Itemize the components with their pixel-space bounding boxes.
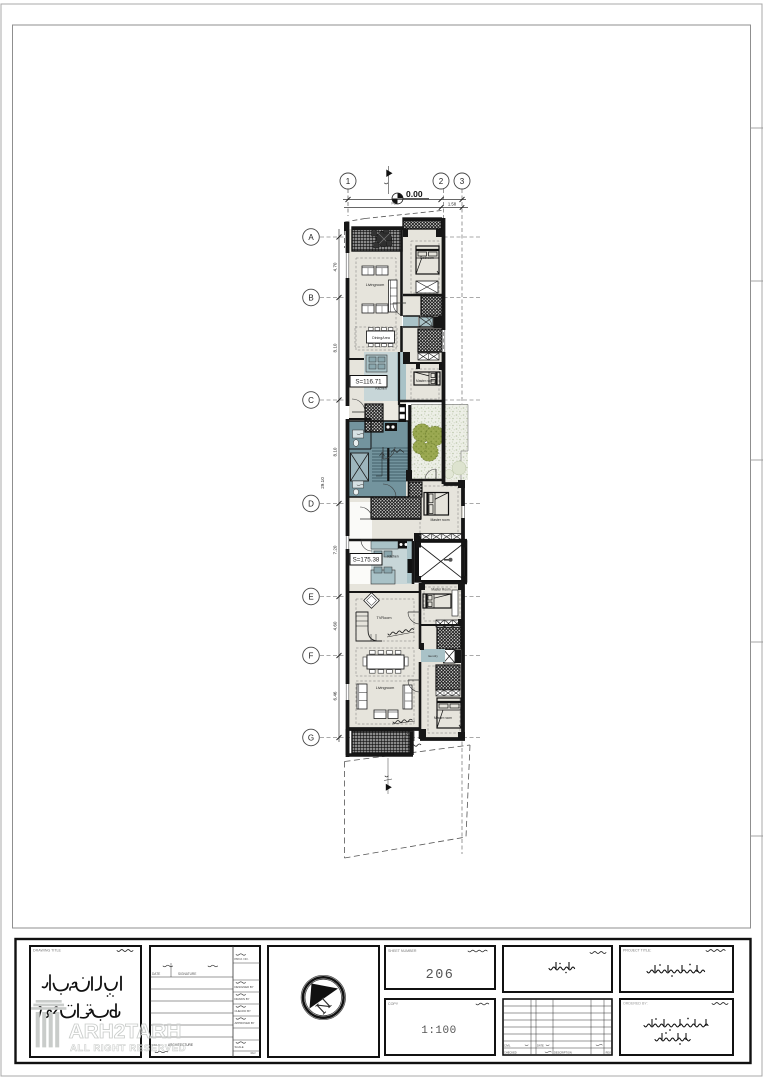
svg-text:206: 206 xyxy=(426,968,455,983)
svg-text:E: E xyxy=(308,592,313,601)
svg-text:ORDERED BY:: ORDERED BY: xyxy=(623,1002,648,1006)
svg-text:TVRoom: TVRoom xyxy=(377,616,392,620)
svg-text:G: G xyxy=(308,733,314,742)
svg-text:6.46: 6.46 xyxy=(333,691,338,700)
svg-text:Master room: Master room xyxy=(434,716,452,720)
svg-text:laundry: laundry xyxy=(428,654,438,658)
svg-text:8.10: 8.10 xyxy=(333,447,338,456)
svg-text:APPROVED BY: APPROVED BY xyxy=(235,1021,255,1025)
svg-text:2: 2 xyxy=(439,177,444,186)
svg-text:FG: FG xyxy=(392,202,397,206)
svg-text:COPY: COPY xyxy=(388,1002,399,1006)
svg-text:Master Room: Master Room xyxy=(431,588,450,592)
svg-text:PROJECT TITLE:: PROJECT TITLE: xyxy=(623,949,651,953)
svg-text:3: 3 xyxy=(460,177,465,186)
svg-text:SHEET NUMBER: SHEET NUMBER xyxy=(388,949,417,953)
svg-text:CHECKD BY: CHECKD BY xyxy=(235,1009,251,1013)
svg-text:CHECKED: CHECKED xyxy=(504,1051,517,1055)
svg-text:Kitchen: Kitchen xyxy=(375,387,386,391)
svg-text:D: D xyxy=(308,499,314,508)
svg-text:Livingroom: Livingroom xyxy=(376,686,395,690)
svg-text:B: B xyxy=(308,293,313,302)
svg-text:A: A xyxy=(308,233,314,242)
svg-text:DiningArea: DiningArea xyxy=(372,336,390,340)
svg-text:DESCRIPTION: DESCRIPTION xyxy=(554,1051,572,1055)
svg-text:C: C xyxy=(308,396,314,405)
svg-text:29.10: 29.10 xyxy=(320,477,325,489)
svg-text:S=116.71: S=116.71 xyxy=(355,379,382,386)
svg-text:Master room: Master room xyxy=(430,518,449,522)
svg-text:4.70: 4.70 xyxy=(333,262,338,271)
svg-text:PROJ. NO.: PROJ. NO. xyxy=(235,957,249,961)
svg-text:ALL RIGHT RESERVED: ALL RIGHT RESERVED xyxy=(70,1043,186,1054)
svg-text:DRAWN BY: DRAWN BY xyxy=(235,997,250,1001)
svg-text:1:100: 1:100 xyxy=(421,1025,457,1037)
svg-text:DATE: DATE xyxy=(152,972,160,976)
svg-text:ARH2TARH: ARH2TARH xyxy=(69,1020,182,1043)
svg-text:CIVIL: CIVIL xyxy=(504,1044,511,1048)
svg-text:Master room: Master room xyxy=(416,379,434,383)
svg-text:0.00: 0.00 xyxy=(406,189,423,199)
svg-text:REV.: REV. xyxy=(251,1052,257,1055)
svg-text:Kitchen: Kitchen xyxy=(387,555,398,559)
svg-text:SCALE: SCALE xyxy=(235,1045,244,1049)
svg-text:4.60: 4.60 xyxy=(333,621,338,630)
svg-text:1: 1 xyxy=(346,177,351,186)
svg-text:Bedroom: Bedroom xyxy=(420,256,434,260)
svg-text:8.10: 8.10 xyxy=(333,343,338,352)
svg-text:DESIGNED BY: DESIGNED BY xyxy=(235,985,254,989)
svg-text:SIGNATURE: SIGNATURE xyxy=(178,972,196,976)
svg-text:Livingroom: Livingroom xyxy=(366,283,385,287)
svg-text:F: F xyxy=(309,651,314,660)
svg-text:REV.: REV. xyxy=(606,1052,612,1055)
svg-text:1.58: 1.58 xyxy=(448,201,457,206)
svg-text:7.20: 7.20 xyxy=(333,545,338,554)
svg-text:DRAWING TITLE: DRAWING TITLE xyxy=(33,949,62,953)
svg-text:S=175.38: S=175.38 xyxy=(353,557,380,564)
svg-text:DATE: DATE xyxy=(537,1044,544,1048)
